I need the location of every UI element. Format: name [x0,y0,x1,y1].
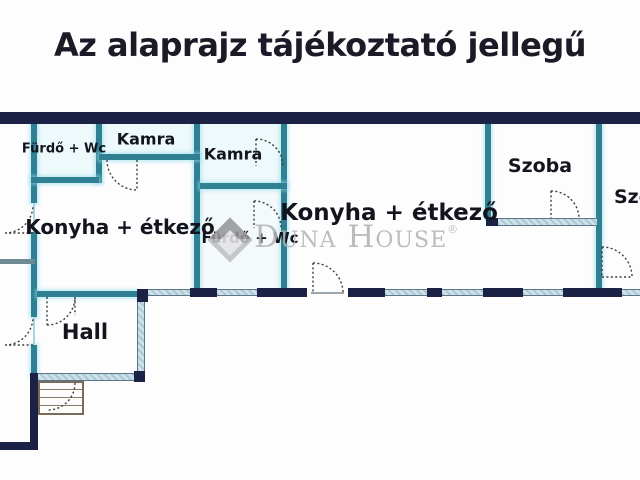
wall-hall-top [37,291,137,297]
wall-bottom-hatched [442,289,483,296]
wall-bottom-segment [563,288,622,297]
room-label-kamra-1: Kamra [117,130,176,149]
wall-bottom-hatched [148,289,190,296]
floorplan-image: Az alaprajz tájékoztató jellegű [0,0,640,480]
stair-step [40,405,82,406]
watermark-brand-text: Duna House® [254,219,458,255]
room-label-kamra-2: Kamra [204,145,263,164]
wall-bottom-segment [257,288,307,297]
wall-furdo1-bottom [31,177,99,183]
wall-left-lower-exterior [30,373,38,450]
wall-szoba1-szoba2 [596,124,602,290]
wall-post-hall-corner [137,289,148,302]
wall-top-exterior [0,112,640,124]
wall-hall-bottom-hatched [38,373,135,381]
room-label-szoba-1: Szoba [508,155,572,177]
registered-mark: ® [447,223,458,236]
stair-step [40,389,82,390]
staircase [38,381,84,415]
wall-stub-left [0,259,35,264]
wall-bottom-segment [348,288,385,297]
duna-house-logo-inner [217,230,242,255]
wall-left-exterior-upper [31,124,37,203]
wall-hall-right-hatched [137,302,145,372]
door-arc-konyha2 [313,263,343,293]
wall-bottom-hatched [523,289,563,296]
page-title: Az alaprajz tájékoztató jellegű [0,26,640,64]
wall-left-exterior-mid [31,232,37,317]
wall-konyha1-right [194,124,200,288]
wall-bottom-hatched [622,289,640,296]
wall-bottom-left-exterior [0,442,32,450]
watermark-brand: Duna House [254,219,447,255]
wall-kamra1-bottom [99,154,200,160]
door-threshold-left-lower [33,317,35,345]
room-label-szoba-2: Szoba [614,186,640,208]
room-label-konyha-etkezo-1: Konyha + étkező [25,215,214,239]
wall-left-exterior-lower [31,345,37,375]
wall-post-hall-bottom [134,371,145,382]
wall-bottom-segment [427,288,442,297]
wall-bottom-segment [483,288,523,297]
room-label-hall: Hall [62,320,108,344]
wall-szoba-bottom-hatched [498,218,597,226]
stair-step [40,397,82,398]
door-arc-szoba2 [602,247,632,277]
wall-bottom-hatched [385,289,427,296]
door-arc-konyha1 [107,160,137,190]
room-label-furdo-wc-1: Fürdő + Wc [22,142,106,157]
wall-bottom-hatched [217,289,257,296]
door-arc-exterior-lower [5,317,33,345]
door-arc-szoba1 [551,191,579,219]
wall-kamra2-bottom [200,183,287,189]
wall-bottom-segment [190,288,217,297]
